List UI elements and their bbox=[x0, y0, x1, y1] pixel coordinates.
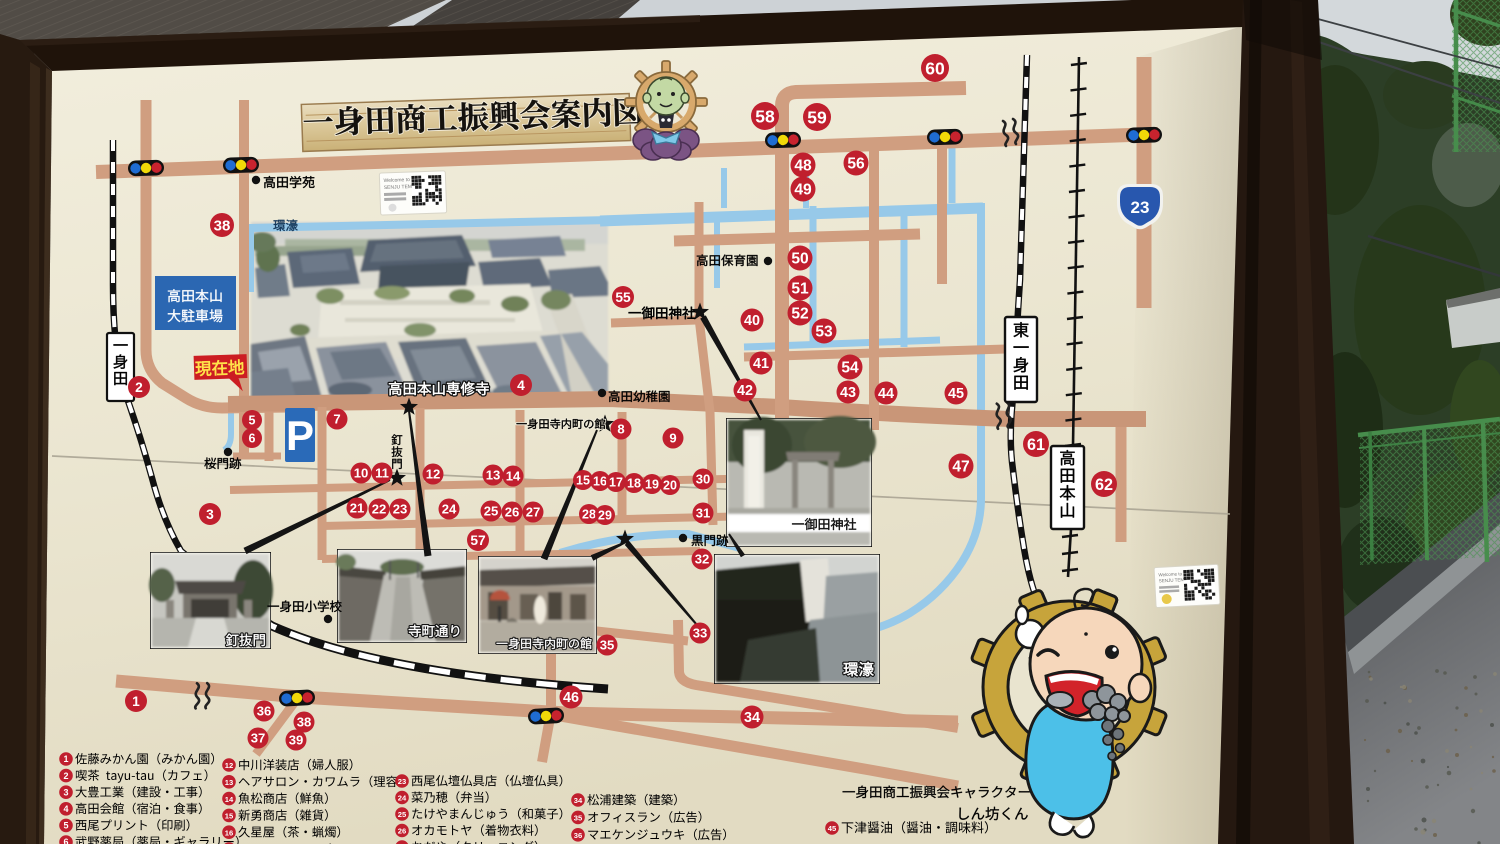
svg-text:35: 35 bbox=[600, 638, 615, 653]
svg-text:47: 47 bbox=[952, 459, 969, 476]
svg-text:25: 25 bbox=[484, 504, 499, 519]
svg-text:3: 3 bbox=[206, 507, 214, 522]
svg-text:23: 23 bbox=[1131, 198, 1150, 217]
svg-text:52: 52 bbox=[791, 306, 809, 323]
svg-text:14: 14 bbox=[506, 469, 521, 484]
svg-text:4: 4 bbox=[517, 378, 525, 393]
svg-text:45: 45 bbox=[828, 824, 837, 833]
svg-text:7: 7 bbox=[333, 412, 340, 427]
svg-text:3: 3 bbox=[63, 787, 68, 797]
svg-text:36: 36 bbox=[257, 704, 272, 719]
svg-text:1: 1 bbox=[132, 694, 140, 709]
svg-text:48: 48 bbox=[794, 158, 812, 175]
svg-text:32: 32 bbox=[695, 552, 710, 567]
svg-text:45: 45 bbox=[948, 386, 964, 402]
svg-text:2: 2 bbox=[63, 771, 68, 781]
svg-text:4: 4 bbox=[63, 804, 68, 814]
svg-text:54: 54 bbox=[841, 360, 859, 377]
svg-text:42: 42 bbox=[737, 383, 753, 399]
svg-text:59: 59 bbox=[807, 107, 827, 127]
svg-text:23: 23 bbox=[393, 502, 408, 517]
svg-text:61: 61 bbox=[1027, 436, 1045, 454]
svg-text:56: 56 bbox=[847, 156, 865, 173]
svg-text:16: 16 bbox=[593, 475, 607, 489]
svg-text:17: 17 bbox=[609, 476, 623, 490]
svg-text:19: 19 bbox=[645, 478, 659, 492]
svg-text:14: 14 bbox=[225, 795, 234, 804]
svg-text:26: 26 bbox=[398, 827, 406, 836]
svg-text:2: 2 bbox=[135, 380, 143, 395]
svg-text:51: 51 bbox=[791, 281, 809, 298]
svg-text:33: 33 bbox=[693, 626, 708, 641]
svg-text:1: 1 bbox=[63, 754, 68, 764]
svg-text:34: 34 bbox=[574, 796, 583, 805]
svg-text:26: 26 bbox=[505, 505, 520, 520]
svg-text:38: 38 bbox=[214, 217, 231, 234]
svg-text:18: 18 bbox=[627, 477, 641, 491]
svg-text:41: 41 bbox=[753, 356, 769, 372]
svg-text:9: 9 bbox=[669, 431, 676, 446]
svg-text:35: 35 bbox=[574, 814, 583, 823]
svg-text:38: 38 bbox=[297, 715, 312, 730]
svg-text:34: 34 bbox=[744, 710, 760, 726]
svg-text:62: 62 bbox=[1095, 476, 1113, 494]
svg-text:46: 46 bbox=[563, 690, 579, 706]
svg-text:5: 5 bbox=[63, 821, 68, 831]
svg-text:16: 16 bbox=[225, 828, 233, 837]
svg-text:43: 43 bbox=[840, 385, 856, 401]
svg-text:57: 57 bbox=[470, 533, 486, 548]
svg-text:55: 55 bbox=[615, 290, 631, 305]
svg-text:24: 24 bbox=[398, 794, 407, 803]
svg-text:31: 31 bbox=[696, 506, 711, 521]
svg-text:21: 21 bbox=[350, 501, 365, 516]
svg-text:40: 40 bbox=[744, 313, 760, 329]
svg-text:13: 13 bbox=[225, 778, 233, 787]
svg-text:53: 53 bbox=[815, 324, 833, 341]
svg-text:39: 39 bbox=[289, 733, 304, 748]
svg-text:10: 10 bbox=[354, 466, 369, 481]
svg-text:44: 44 bbox=[878, 386, 894, 402]
svg-text:24: 24 bbox=[442, 502, 457, 517]
svg-text:20: 20 bbox=[663, 479, 677, 493]
svg-text:23: 23 bbox=[398, 777, 406, 786]
svg-text:25: 25 bbox=[398, 810, 407, 819]
svg-text:12: 12 bbox=[426, 467, 441, 482]
svg-text:6: 6 bbox=[63, 837, 68, 844]
svg-text:22: 22 bbox=[372, 502, 387, 517]
svg-text:15: 15 bbox=[225, 812, 234, 821]
svg-text:8: 8 bbox=[617, 422, 624, 437]
svg-text:11: 11 bbox=[375, 466, 389, 481]
svg-text:60: 60 bbox=[925, 58, 945, 78]
svg-text:50: 50 bbox=[791, 251, 809, 268]
svg-text:37: 37 bbox=[251, 731, 266, 746]
svg-text:15: 15 bbox=[576, 474, 590, 488]
svg-text:5: 5 bbox=[249, 414, 256, 428]
svg-text:58: 58 bbox=[755, 106, 775, 126]
svg-text:Welcome to: Welcome to bbox=[383, 177, 410, 184]
svg-text:28: 28 bbox=[582, 508, 596, 522]
svg-text:30: 30 bbox=[696, 472, 711, 487]
svg-text:12: 12 bbox=[225, 761, 233, 770]
svg-text:6: 6 bbox=[249, 432, 256, 446]
svg-text:P: P bbox=[286, 412, 314, 459]
svg-text:27: 27 bbox=[526, 505, 541, 520]
svg-text:29: 29 bbox=[598, 509, 612, 523]
svg-text:13: 13 bbox=[486, 468, 501, 483]
svg-text:49: 49 bbox=[794, 182, 812, 199]
svg-text:36: 36 bbox=[574, 831, 582, 840]
